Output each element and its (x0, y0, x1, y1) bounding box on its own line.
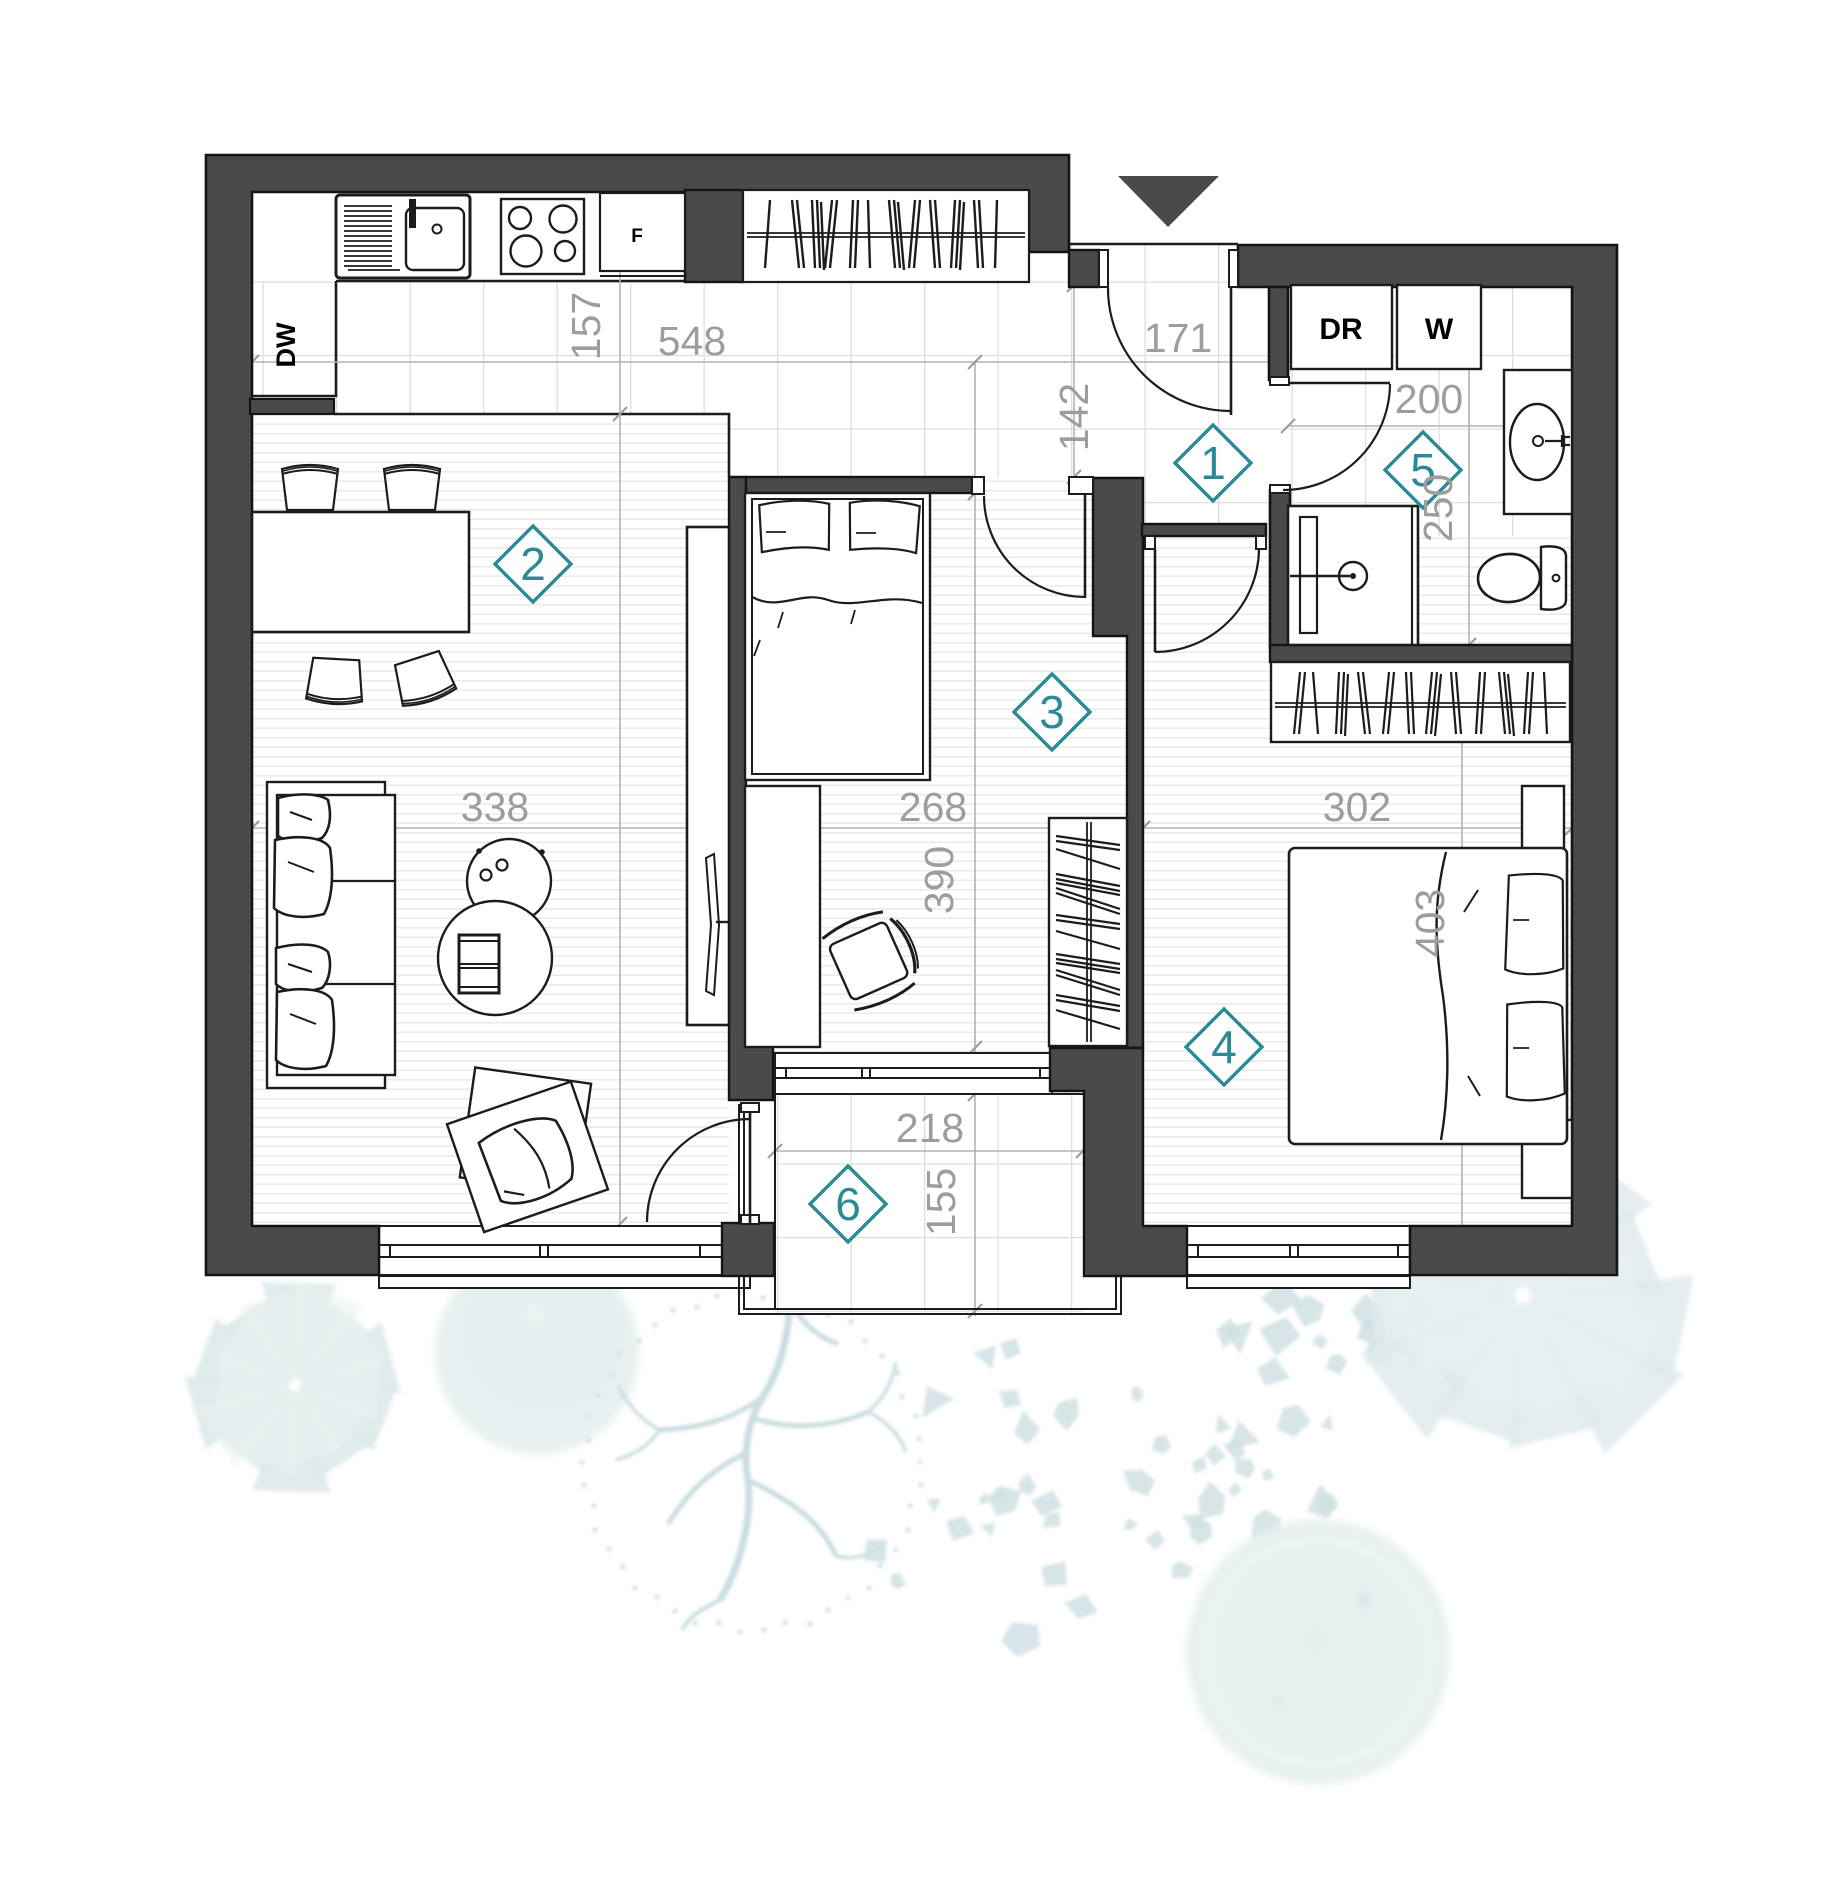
svg-text:W: W (1425, 313, 1454, 346)
svg-text:338: 338 (461, 784, 529, 830)
svg-text:4: 4 (1211, 1021, 1237, 1073)
svg-text:6: 6 (835, 1178, 861, 1230)
svg-text:155: 155 (918, 1168, 964, 1236)
svg-text:218: 218 (896, 1105, 964, 1151)
svg-text:250: 250 (1415, 474, 1461, 542)
svg-text:200: 200 (1395, 376, 1463, 422)
svg-text:171: 171 (1144, 315, 1212, 361)
svg-text:3: 3 (1039, 686, 1065, 738)
svg-text:F: F (631, 226, 643, 247)
svg-text:390: 390 (916, 846, 962, 914)
svg-text:403: 403 (1407, 889, 1453, 957)
svg-text:2: 2 (520, 538, 546, 590)
svg-text:DR: DR (1319, 313, 1363, 346)
svg-text:157: 157 (563, 292, 609, 360)
svg-text:548: 548 (658, 318, 726, 364)
svg-text:268: 268 (899, 784, 967, 830)
svg-text:302: 302 (1323, 784, 1391, 830)
svg-text:DW: DW (271, 322, 301, 367)
svg-text:1: 1 (1200, 437, 1226, 489)
svg-text:142: 142 (1051, 383, 1097, 451)
